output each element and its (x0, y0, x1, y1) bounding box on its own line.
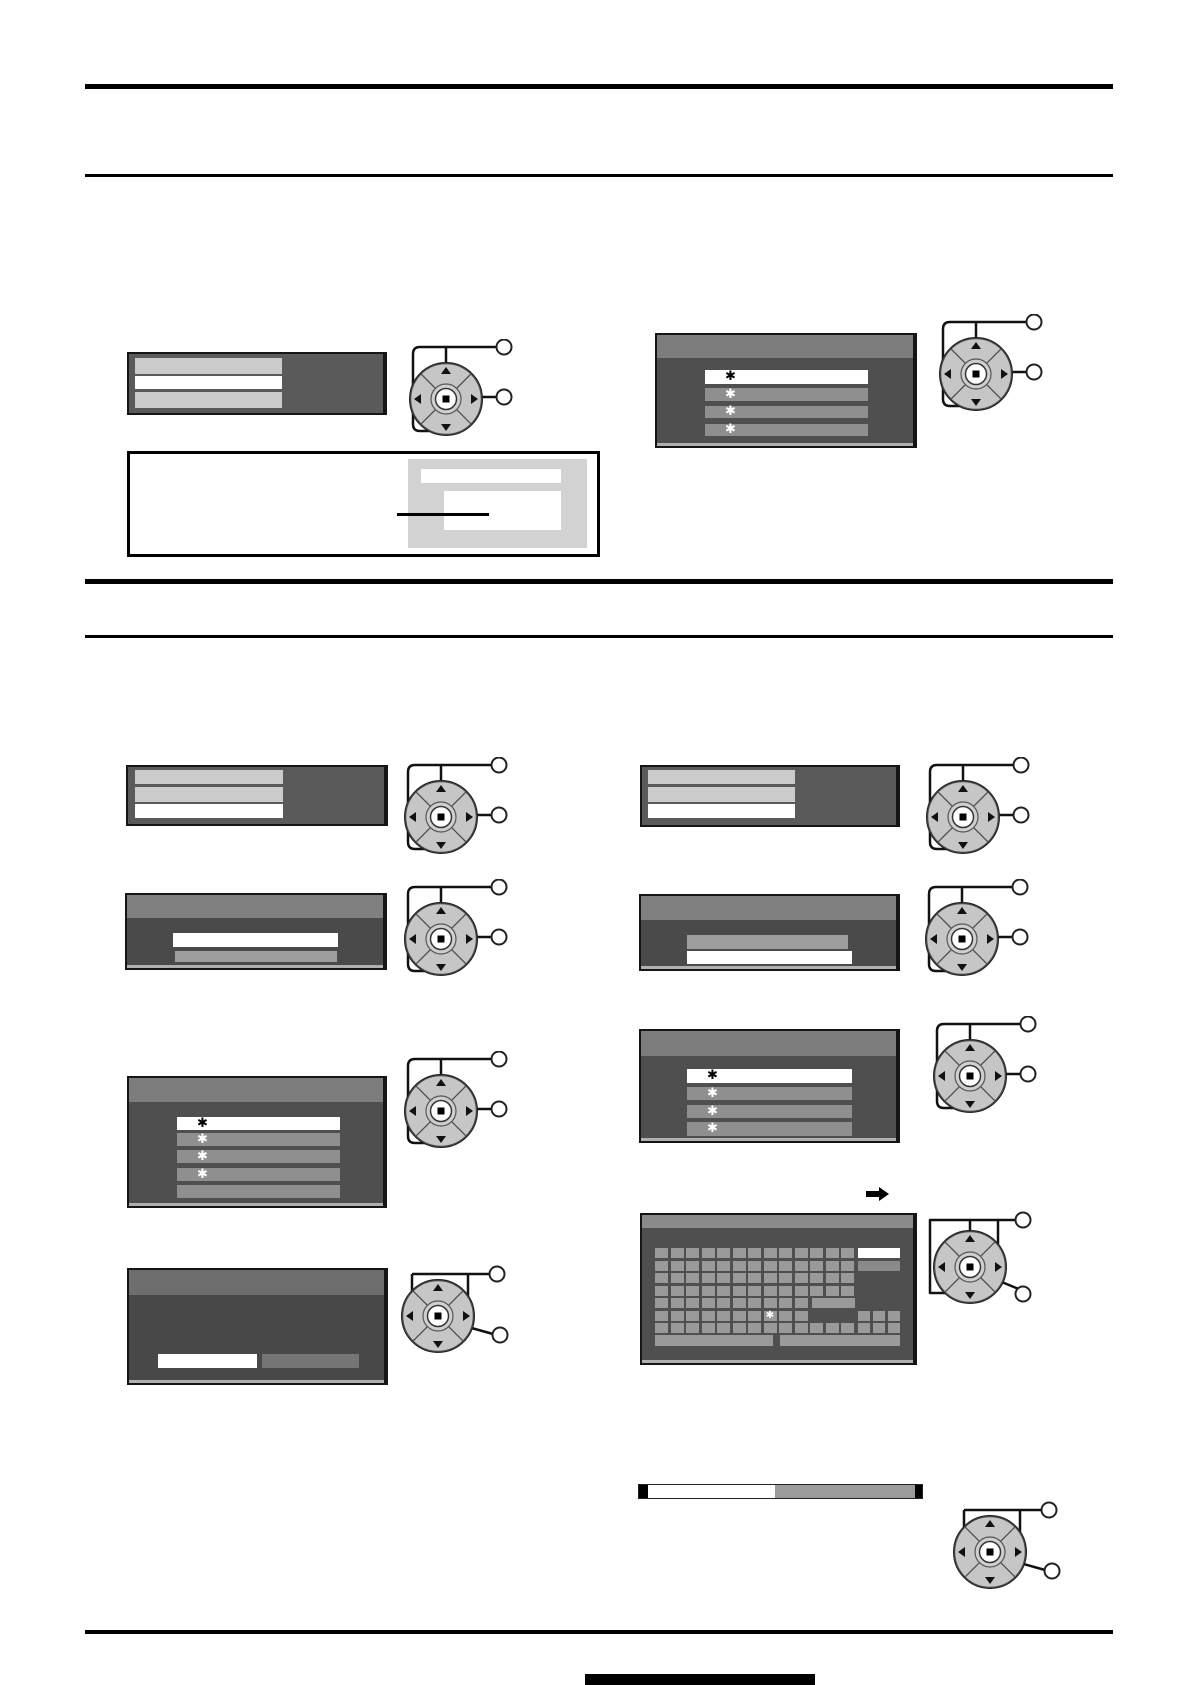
char-key (795, 1286, 808, 1296)
char-key (779, 1248, 792, 1258)
callout-circle-1 (1021, 1017, 1036, 1032)
menu-row (135, 770, 283, 784)
section-rule-mid-thin (85, 635, 1113, 638)
char-key (764, 1323, 777, 1333)
character-grid: ✱ (655, 1248, 903, 1350)
section-rule-mid-thick (85, 579, 1113, 584)
char-key (702, 1273, 715, 1283)
menu-row (135, 392, 282, 408)
char-key (733, 1311, 746, 1321)
menu-screenshot-top-right: ✱ ✱ ✱ ✱ (655, 333, 917, 448)
char-key (748, 1298, 761, 1308)
char-key (655, 1261, 668, 1271)
char-key (671, 1286, 684, 1296)
dpad-illustration-3 (399, 757, 513, 865)
callout-circle-1 (490, 1267, 505, 1282)
center-square-icon (435, 1313, 442, 1320)
char-key (733, 1261, 746, 1271)
char-key (702, 1261, 715, 1271)
char-key (779, 1286, 792, 1296)
callout-circle-1 (492, 758, 507, 773)
menu-row: ✱ (687, 1087, 852, 1100)
note-box (127, 451, 600, 557)
char-key (702, 1311, 715, 1321)
keyboard-screenshot: ✱ (640, 1213, 917, 1365)
char-key (671, 1298, 684, 1308)
function-key (873, 1311, 885, 1321)
section-rule-top-thin (85, 174, 1113, 177)
space-key (780, 1335, 900, 1346)
menu-row-selected (135, 804, 283, 818)
dpad-illustration-5 (399, 879, 513, 987)
dpad-illustration-1 (404, 339, 518, 447)
callout-circle-2 (492, 1102, 507, 1117)
function-key (873, 1323, 885, 1333)
arrow-bar (866, 1191, 879, 1197)
menu-row-selected: ✱ (177, 1117, 340, 1130)
menu-row: ✱ (177, 1150, 340, 1163)
char-key (686, 1248, 699, 1258)
manual-page: ✱ ✱ ✱ ✱ ✱ ✱ (0, 0, 1191, 1685)
char-key (655, 1273, 668, 1283)
menu-row: ✱ (705, 424, 868, 436)
menu-row-selected (135, 376, 282, 389)
menu-row: ✱ (177, 1168, 340, 1181)
char-key (702, 1248, 715, 1258)
dpad-illustration-7 (928, 1016, 1042, 1124)
char-key (748, 1311, 761, 1321)
char-key (671, 1273, 684, 1283)
callout-circle-1 (1042, 1503, 1057, 1518)
bar-remainder-segment (775, 1485, 915, 1498)
char-key (764, 1298, 777, 1308)
asterisk-marker: ✱ (707, 1105, 718, 1118)
char-key (717, 1273, 730, 1283)
function-key (858, 1311, 870, 1321)
char-key-current: ✱ (764, 1311, 777, 1321)
char-key (655, 1248, 668, 1258)
char-key (686, 1273, 699, 1283)
menu-row: ✱ (705, 406, 868, 418)
char-key (686, 1311, 699, 1321)
char-key (826, 1286, 839, 1296)
char-key (655, 1323, 668, 1333)
menu-title-bar (657, 335, 913, 358)
callout-circle-2 (1027, 365, 1042, 380)
section-rule-top-thick (85, 84, 1113, 89)
char-key (841, 1273, 854, 1283)
space-key (655, 1335, 773, 1346)
asterisk-marker: ✱ (725, 405, 736, 418)
asterisk-marker: ✱ (197, 1168, 208, 1181)
menu-row: ✱ (705, 388, 868, 401)
menu-row (135, 787, 283, 802)
char-key (795, 1261, 808, 1271)
footer-button (262, 1354, 359, 1368)
char-key (671, 1311, 684, 1321)
asterisk-marker: ✱ (725, 370, 736, 383)
menu-row-selected (648, 804, 795, 818)
char-key (686, 1323, 699, 1333)
mode-key-selected (858, 1248, 900, 1258)
char-key (655, 1286, 668, 1296)
char-key (795, 1273, 808, 1283)
callout-circle-1 (1014, 758, 1029, 773)
char-key (748, 1261, 761, 1271)
char-key (779, 1298, 792, 1308)
callout-circle-1 (1027, 315, 1042, 330)
callout-circle-2 (1016, 1287, 1031, 1302)
center-square-icon (438, 1108, 445, 1115)
char-key (748, 1248, 761, 1258)
char-key (717, 1298, 730, 1308)
list-menu-screenshot-right: ✱ ✱ ✱ ✱ (639, 1029, 900, 1143)
char-key (733, 1323, 746, 1333)
char-key (717, 1261, 730, 1271)
char-key (717, 1286, 730, 1296)
char-key (671, 1323, 684, 1333)
char-key (717, 1311, 730, 1321)
menu-row-selected: ✱ (687, 1069, 852, 1083)
callout-circle-2 (493, 1328, 508, 1343)
footer-button-selected (158, 1354, 257, 1368)
dpad-illustration-2 (934, 314, 1048, 422)
center-square-icon (987, 1549, 994, 1556)
callout-circle-2 (492, 808, 507, 823)
callout-circle-2 (492, 930, 507, 945)
center-square-icon (438, 936, 445, 943)
menu-row (648, 770, 795, 784)
dpad-illustration-9 (928, 1207, 1042, 1315)
asterisk-marker: ✱ (707, 1069, 718, 1082)
char-key (810, 1286, 823, 1296)
char-key (826, 1248, 839, 1258)
list-menu-screenshot-left: ✱ ✱ ✱ ✱ (127, 1076, 387, 1208)
menu-screenshot-mid-right (640, 765, 900, 827)
dpad-illustration-4 (921, 757, 1035, 865)
next-step-arrow-icon (866, 1187, 890, 1201)
char-key (717, 1323, 730, 1333)
asterisk-marker: ✱ (197, 1150, 208, 1163)
char-key (841, 1286, 854, 1296)
char-key (764, 1286, 777, 1296)
char-key (748, 1323, 761, 1333)
asterisk-marker: ✱ (197, 1133, 208, 1146)
menu-row: ✱ (177, 1133, 340, 1146)
callout-circle-2 (1045, 1564, 1060, 1579)
menu-title-bar (129, 1270, 384, 1295)
menu-screenshot-mid-left (126, 765, 388, 826)
char-key (733, 1273, 746, 1283)
callout-circle-1 (492, 1052, 507, 1067)
char-key (717, 1248, 730, 1258)
wide-key (812, 1298, 855, 1308)
function-key (858, 1323, 870, 1333)
menu-title-bar (641, 1031, 896, 1056)
char-key (841, 1248, 854, 1258)
callout-circle-2 (497, 390, 512, 405)
asterisk-marker: ✱ (725, 423, 736, 436)
char-key (764, 1261, 777, 1271)
char-key (671, 1261, 684, 1271)
char-key (841, 1323, 854, 1333)
center-square-icon (438, 814, 445, 821)
char-key (779, 1323, 792, 1333)
mode-key (858, 1261, 900, 1271)
callout-circle-2 (1021, 1067, 1036, 1082)
char-key (826, 1323, 839, 1333)
center-square-icon (960, 814, 967, 821)
char-key (826, 1273, 839, 1283)
thumbnail-field (444, 491, 561, 530)
dialog-field-selected (173, 933, 338, 947)
section-rule-bottom (85, 1630, 1113, 1634)
callout-circle-2 (1014, 808, 1029, 823)
center-square-icon (443, 396, 450, 403)
char-key (810, 1248, 823, 1258)
center-square-icon (967, 1264, 974, 1271)
char-key (655, 1298, 668, 1308)
callout-circle-1 (497, 340, 512, 355)
char-key (764, 1248, 777, 1258)
char-key (841, 1261, 854, 1271)
dpad-illustration-8 (399, 1051, 513, 1159)
char-key (748, 1273, 761, 1283)
menu-row: ✱ (687, 1105, 852, 1118)
menu-title-bar (127, 895, 383, 918)
char-key (810, 1323, 823, 1333)
slider-bar-screenshot (638, 1484, 923, 1499)
menu-row-selected: ✱ (705, 370, 868, 384)
arrow-head (879, 1187, 889, 1201)
dialog-field (175, 951, 337, 962)
menu-row (135, 358, 282, 374)
dpad-illustration-10 (396, 1256, 510, 1364)
bar-left-cap (639, 1485, 648, 1498)
menu-row (177, 1185, 340, 1198)
char-key (795, 1323, 808, 1333)
dialog-field (687, 935, 848, 949)
char-key (795, 1311, 808, 1321)
asterisk-marker: ✱ (725, 388, 736, 401)
dpad-illustration-6 (920, 879, 1034, 987)
char-key (748, 1286, 761, 1296)
menu-title-bar (641, 896, 896, 920)
menu-row: ✱ (687, 1122, 852, 1136)
char-key (764, 1273, 777, 1283)
dialog-screenshot-left (125, 893, 387, 970)
dpad-illustration-11 (948, 1492, 1062, 1600)
char-key (733, 1286, 746, 1296)
char-key (702, 1286, 715, 1296)
char-key (795, 1248, 808, 1258)
char-key (795, 1298, 808, 1308)
center-square-icon (973, 371, 980, 378)
function-key (888, 1323, 900, 1333)
char-key (686, 1286, 699, 1296)
char-key (779, 1311, 792, 1321)
char-key (702, 1298, 715, 1308)
dialog-screenshot-right (639, 894, 900, 971)
char-key (826, 1261, 839, 1271)
char-key (702, 1323, 715, 1333)
callout-circle-1 (1016, 1213, 1031, 1228)
bar-filled-segment (648, 1485, 775, 1498)
callout-circle-1 (1013, 880, 1028, 895)
char-key (655, 1311, 668, 1321)
thumbnail-row (421, 469, 561, 483)
menu-row (648, 787, 795, 802)
center-square-icon (967, 1073, 974, 1080)
callout-circle-2 (1013, 930, 1028, 945)
thumbnail-pointer-line (397, 513, 489, 516)
menu-title-bar (642, 1215, 913, 1228)
char-key (779, 1261, 792, 1271)
char-key (733, 1298, 746, 1308)
page-footer-crop-bar (585, 1674, 815, 1685)
function-key (888, 1311, 900, 1321)
callout-circle-1 (492, 880, 507, 895)
char-key (810, 1261, 823, 1271)
char-key (686, 1298, 699, 1308)
dialog-field-selected (687, 951, 852, 964)
center-square-icon (959, 936, 966, 943)
asterisk-marker: ✱ (707, 1122, 718, 1135)
asterisk-marker: ✱ (197, 1117, 208, 1130)
asterisk-marker: ✱ (707, 1087, 718, 1100)
char-key (686, 1261, 699, 1271)
char-key (733, 1248, 746, 1258)
menu-screenshot-top-left (127, 352, 387, 415)
bar-right-cap (915, 1485, 922, 1498)
menu-title-bar (129, 1078, 383, 1102)
char-key (779, 1273, 792, 1283)
char-key (671, 1248, 684, 1258)
char-key (810, 1273, 823, 1283)
dialog-screenshot-bottom-left (127, 1268, 388, 1385)
